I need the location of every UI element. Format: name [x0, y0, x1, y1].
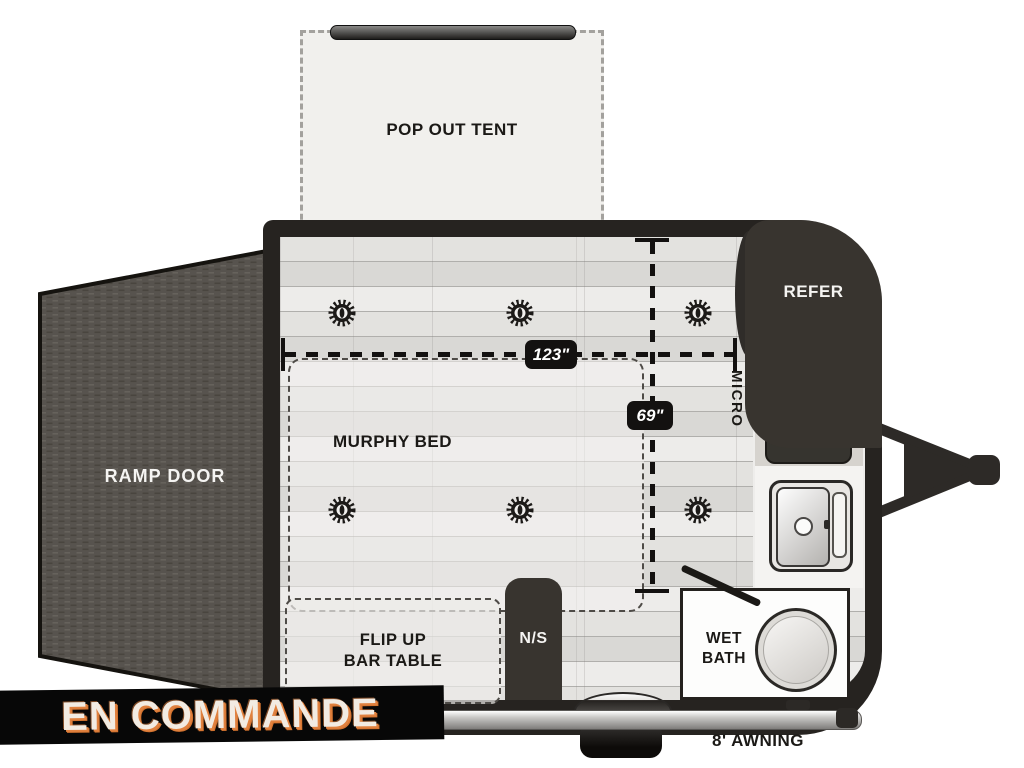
- rv-floorplan: POP OUT TENT RAMP DOOR MURPHY BED FLIP U…: [0, 0, 1024, 768]
- ramp-door-label: RAMP DOOR: [70, 466, 260, 487]
- murphy-bed-label: MURPHY BED: [290, 432, 495, 452]
- length-dimension-cap-left: [281, 338, 285, 371]
- ceiling-light-icon: [683, 495, 713, 525]
- toilet: [755, 608, 837, 692]
- sink-drain-icon: [794, 517, 813, 536]
- width-dimension-cap-top: [635, 238, 669, 242]
- status-banner-label: EN COMMANDE: [61, 691, 379, 740]
- length-dimension-line: [284, 352, 736, 357]
- awning-end-cap: [836, 708, 858, 728]
- flip-up-bar-table-label-line1: FLIP UP: [360, 630, 426, 651]
- status-banner: EN COMMANDE: [0, 685, 444, 744]
- toilet-seat: [763, 616, 829, 684]
- ceiling-light-icon: [505, 495, 535, 525]
- sink-drainboard: [832, 492, 847, 558]
- width-dimension-cap-bottom: [635, 589, 669, 593]
- wet-bath: WET BATH: [680, 588, 850, 700]
- wet-bath-label: WET BATH: [689, 629, 759, 669]
- ceiling-light-icon: [327, 495, 357, 525]
- width-dimension-badge: 69": [627, 401, 673, 430]
- sink-counter: [755, 466, 863, 588]
- nightstand: N/S: [505, 578, 562, 700]
- sink: [769, 480, 853, 572]
- murphy-bed: MURPHY BED: [288, 358, 644, 612]
- refrigerator: REFER: [745, 220, 882, 448]
- awning-roll: [436, 710, 862, 730]
- ceiling-light-icon: [683, 298, 713, 328]
- faucet-icon: [824, 520, 830, 529]
- flip-up-bar-table-label-line2: BAR TABLE: [344, 651, 443, 672]
- length-dimension-badge: 123": [525, 340, 577, 369]
- nightstand-label: N/S: [519, 630, 547, 648]
- pop-out-tent: POP OUT TENT: [300, 30, 604, 229]
- ceiling-light-icon: [505, 298, 535, 328]
- microwave-label: MICRO: [728, 370, 745, 468]
- length-dimension-cap-right: [733, 338, 737, 371]
- sink-basin: [776, 487, 830, 567]
- awning-label: 8' AWNING: [712, 731, 804, 751]
- pop-out-tent-label: POP OUT TENT: [386, 120, 517, 140]
- refrigerator-label: REFER: [745, 282, 882, 302]
- tent-rail: [330, 25, 576, 40]
- awning-bracket: [786, 700, 810, 710]
- ceiling-light-icon: [327, 298, 357, 328]
